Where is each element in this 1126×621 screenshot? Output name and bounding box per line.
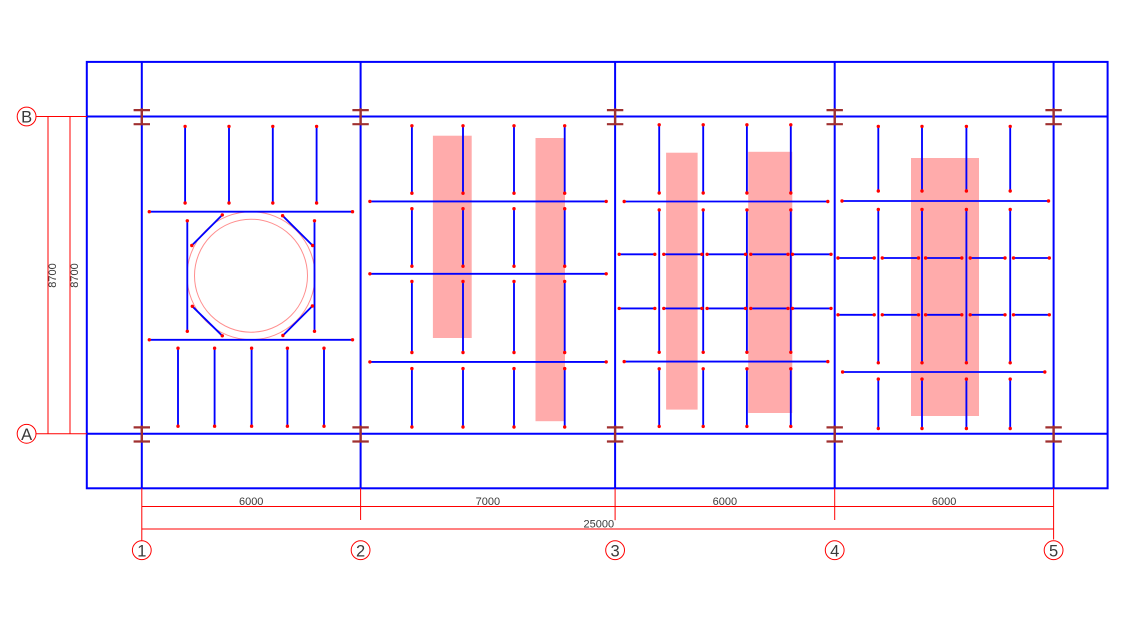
svg-text:6000: 6000 [239,496,263,508]
svg-text:4: 4 [830,542,839,560]
svg-text:6000: 6000 [713,496,737,508]
svg-text:2: 2 [356,542,365,560]
svg-text:5: 5 [1049,542,1058,560]
svg-text:7000: 7000 [476,496,500,508]
svg-text:8700: 8700 [69,263,81,287]
svg-text:A: A [21,426,32,444]
svg-text:25000: 25000 [584,518,615,530]
svg-text:3: 3 [611,542,620,560]
svg-text:1: 1 [137,542,146,560]
svg-text:8700: 8700 [47,263,59,287]
svg-text:6000: 6000 [932,496,956,508]
svg-text:B: B [21,109,32,127]
